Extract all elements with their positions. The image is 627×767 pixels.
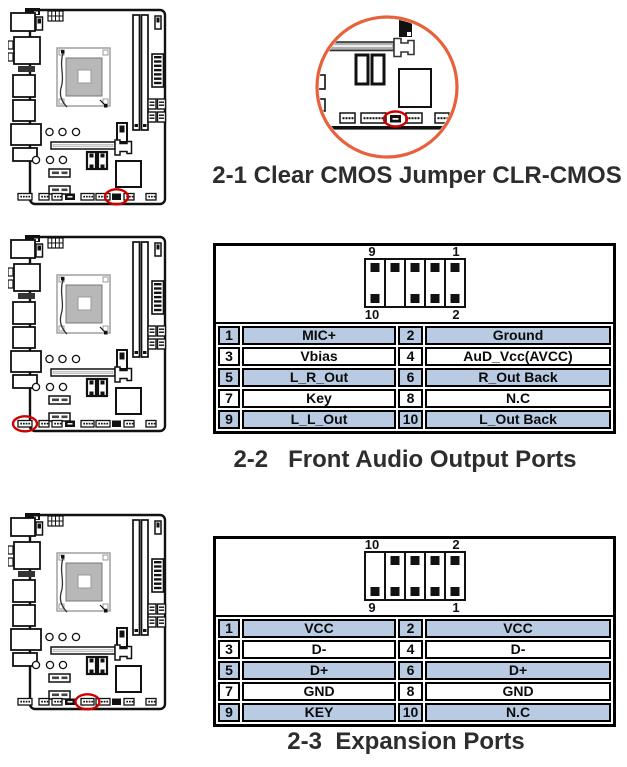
sata-port [148, 112, 156, 122]
motherboard-diagram-cmos [8, 8, 168, 208]
pin-function-cell: D+ [242, 661, 396, 680]
usb-header [356, 55, 368, 84]
dimm-slot [133, 520, 140, 635]
pin-header-diagram: 10291 [310, 540, 520, 614]
pin-function-cell: L_R_Out [242, 368, 396, 387]
cmos-zoom-inset [312, 12, 462, 162]
pin-number-cell: 6 [398, 661, 423, 680]
io-port [13, 580, 35, 602]
pin-row: 7GND8GND [218, 682, 611, 701]
pin-number-cell: 5 [218, 368, 240, 387]
pin-row: 9KEY10N.C [218, 703, 611, 722]
pin-number-cell: 9 [218, 703, 240, 722]
pin-header-diagram: 91102 [310, 247, 520, 321]
pin-number-cell: 2 [398, 619, 423, 638]
sata-port [148, 99, 156, 109]
dimm-slot [142, 520, 149, 635]
pin-row: 1MIC+2Ground [218, 326, 611, 345]
io-port [11, 13, 35, 31]
chipset [116, 161, 141, 187]
pin-assignment-table: 1VCC2VCC3D-4D-5D+6D+7GND8GND9KEY10N.C [216, 617, 613, 724]
manual-page: 2-1 Clear CMOS Jumper CLR-CMOS 911021MIC… [0, 0, 627, 767]
io-port [11, 629, 41, 650]
magnifier-circle [317, 17, 457, 157]
sata-port [158, 112, 166, 122]
pin-label-top-left: 9 [368, 247, 375, 259]
sata-port [148, 617, 156, 627]
io-port [11, 240, 35, 258]
motherboard-diagram-audio [8, 235, 168, 435]
io-port [11, 518, 35, 536]
pin-number-cell: 7 [218, 682, 240, 701]
pin-number-cell: 3 [218, 640, 240, 659]
pin-function-cell: VCC [242, 619, 396, 638]
pin-function-cell: Vbias [242, 347, 396, 366]
io-port [13, 605, 35, 626]
pin-row: 3Vbias4AuD_Vcc(AVCC) [218, 347, 611, 366]
jumper-block [112, 421, 121, 428]
audio-pin-table: 911021MIC+2Ground3Vbias4AuD_Vcc(AVCC)5L_… [213, 243, 616, 434]
sata-port [158, 99, 166, 109]
sata-port [158, 604, 166, 614]
pin-function-cell: VCC [425, 619, 611, 638]
pin-label-top-left: 10 [364, 540, 378, 552]
io-port [11, 351, 41, 372]
dimm-slot [142, 15, 149, 130]
sata-port [148, 604, 156, 614]
pin-assignment-table: 1MIC+2Ground3Vbias4AuD_Vcc(AVCC)5L_R_Out… [216, 324, 613, 431]
pin-function-cell: D- [242, 640, 396, 659]
pin-row: 9L_L_Out10L_Out Back [218, 410, 611, 429]
sata-port [158, 326, 166, 336]
pin-function-cell: KEY [242, 703, 396, 722]
pin-row: 5D+6D+ [218, 661, 611, 680]
pin-number-cell: 9 [218, 410, 240, 429]
pin-number-cell: 2 [398, 326, 423, 345]
chipset [399, 69, 431, 107]
pin-number-cell: 8 [398, 682, 423, 701]
caption-expansion: 2-3 Expansion Ports [196, 728, 616, 756]
pin-label-bottom-left: 10 [364, 307, 378, 321]
caption-front-audio: 2-2 Front Audio Output Ports [195, 446, 615, 474]
pin-label-bottom-right: 2 [452, 307, 459, 321]
io-port [13, 302, 35, 324]
chipset [116, 388, 141, 414]
pin-number-cell: 10 [398, 410, 423, 429]
vga-port [14, 264, 40, 291]
sata-port [158, 617, 166, 627]
caption-clear-cmos: 2-1 Clear CMOS Jumper CLR-CMOS [205, 162, 627, 190]
expansion-pin-table: 102911VCC2VCC3D-4D-5D+6D+7GND8GND9KEY10N… [213, 536, 616, 727]
pin-function-cell: N.C [425, 703, 611, 722]
jumper-block [112, 699, 121, 706]
pin-header-area: 10291 [216, 539, 613, 617]
pin-function-cell: AuD_Vcc(AVCC) [425, 347, 611, 366]
pin-number-cell: 3 [218, 347, 240, 366]
pin-header [406, 113, 422, 123]
chipset [116, 666, 141, 692]
io-port [13, 75, 35, 97]
pin-function-cell: D+ [425, 661, 611, 680]
pin-function-cell: Ground [425, 326, 611, 345]
pin-number-cell: 4 [398, 347, 423, 366]
pin-row: 3D-4D- [218, 640, 611, 659]
sata-port [148, 326, 156, 336]
pin-number-cell: 1 [218, 326, 240, 345]
pin-label-top-right: 1 [452, 247, 459, 259]
vga-port [14, 542, 40, 569]
pin-number-cell: 8 [398, 389, 423, 408]
usb-header [372, 55, 384, 84]
pin-label-bottom-right: 1 [452, 600, 459, 614]
pin-header-area: 91102 [216, 246, 613, 324]
pin-number-cell: 10 [398, 703, 423, 722]
io-port [13, 327, 35, 348]
pin-function-cell: GND [242, 682, 396, 701]
pin-number-cell: 7 [218, 389, 240, 408]
pin-function-cell: L_Out Back [425, 410, 611, 429]
pin-row: 7Key8N.C [218, 389, 611, 408]
pin-function-cell: R_Out Back [425, 368, 611, 387]
pin-function-cell: Key [242, 389, 396, 408]
pin-label-top-right: 2 [452, 540, 459, 552]
vga-port [14, 37, 40, 64]
dimm-slot [133, 15, 140, 130]
sata-port [148, 339, 156, 349]
pin-function-cell: L_L_Out [242, 410, 396, 429]
sata-port [158, 339, 166, 349]
jumper-block [112, 194, 121, 201]
pin-row: 1VCC2VCC [218, 619, 611, 638]
pin-number-cell: 4 [398, 640, 423, 659]
pin-row: 5L_R_Out6R_Out Back [218, 368, 611, 387]
dimm-slot [142, 242, 149, 357]
pin-number-cell: 1 [218, 619, 240, 638]
pin-function-cell: MIC+ [242, 326, 396, 345]
io-port [11, 124, 41, 145]
motherboard-diagram-expansion [8, 513, 168, 713]
pin-function-cell: N.C [425, 389, 611, 408]
io-port [13, 100, 35, 121]
pin-function-cell: D- [425, 640, 611, 659]
dimm-slot [133, 242, 140, 357]
pin-function-cell: GND [425, 682, 611, 701]
pin-number-cell: 5 [218, 661, 240, 680]
pin-label-bottom-left: 9 [368, 600, 375, 614]
pin-number-cell: 6 [398, 368, 423, 387]
